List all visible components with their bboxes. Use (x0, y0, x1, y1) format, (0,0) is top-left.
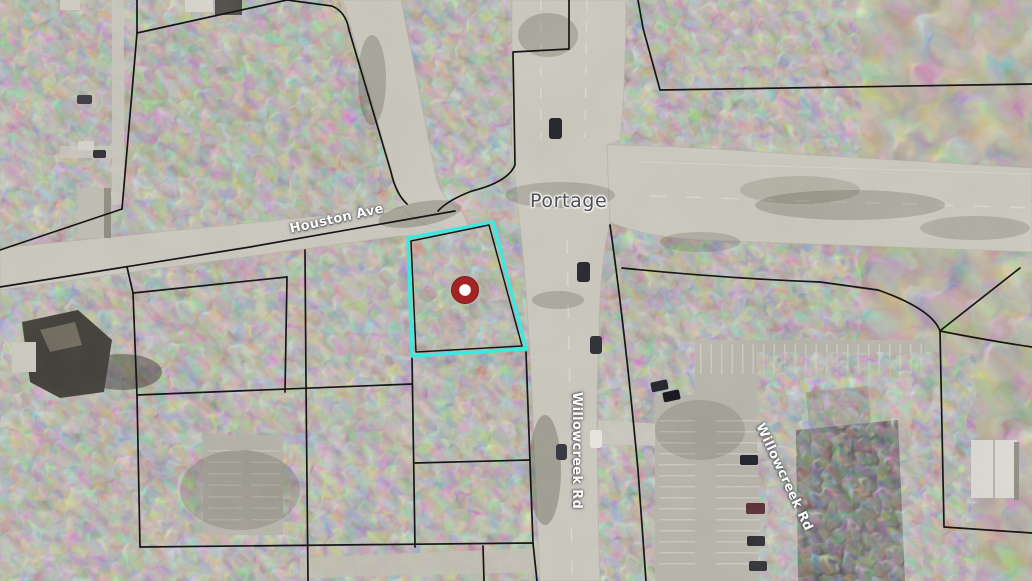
aerial-imagery-canvas (0, 0, 1032, 581)
location-marker[interactable] (452, 277, 479, 304)
city-label-portage: Portage (530, 190, 607, 212)
aerial-map-viewport[interactable]: Portage Houston Ave Willowcreek Rd Willo… (0, 0, 1032, 581)
marker-inner-dot (459, 284, 471, 296)
street-label-willowcreek-rd-vertical: Willowcreek Rd (569, 392, 584, 509)
